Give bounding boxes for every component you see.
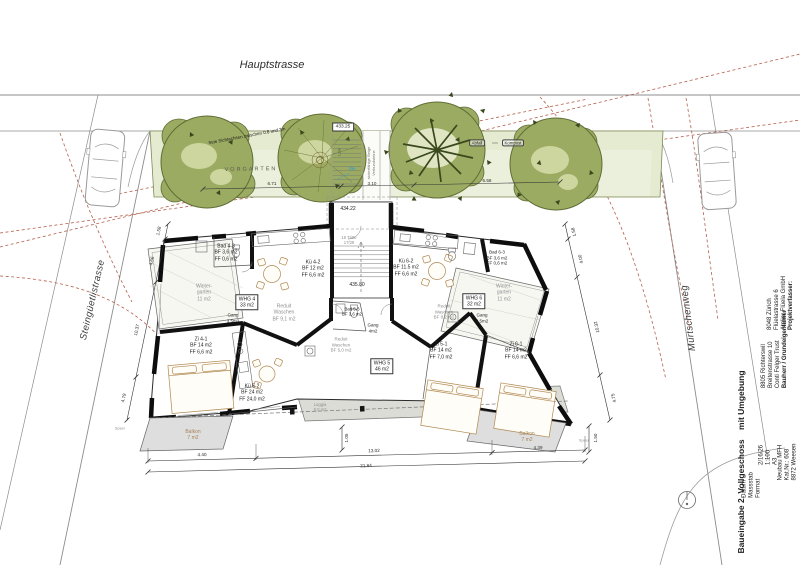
bed-zi51	[421, 380, 484, 434]
floor-plan-canvas: Hauptstrasse Steingüetlistrasse Mürtsche…	[0, 0, 800, 565]
titleblock-object: Neubau MFH Kat.Nr.: 608 8872 Weesen	[777, 444, 798, 481]
dim-balkon-right-depth: 1.50	[593, 434, 599, 443]
room-label-gang6: Gang3,5m2	[476, 312, 489, 323]
room-label-zi51: Zi 5-1BF 14 m2FF 7,0 m2	[430, 342, 453, 361]
car-right	[695, 132, 739, 211]
titleblock-author: Projektverfasser: Atelier Flüela GmbH Fl…	[767, 276, 795, 330]
room-label-reduit4: ReduitWaschenBF 9,1 m2	[272, 304, 295, 323]
tree-1	[161, 116, 255, 208]
abfall-label: Abfall	[469, 139, 485, 146]
tree-4	[510, 118, 602, 210]
outdoor-stair-width: 1,2m	[338, 148, 343, 156]
room-label-loggia: Loggia8,0 m2	[314, 402, 327, 413]
speer-label-right: Speer	[579, 439, 589, 444]
room-label-bad63: Bad 6-3BF 3,6 m2FF 0,6 m2	[487, 250, 508, 267]
room-label-whg5: WHG 546 m2	[370, 358, 393, 374]
room-label-gang4: Gang3,5m2	[227, 312, 240, 323]
dim-loggia-depth: 1.05	[344, 434, 350, 443]
dim-bottom-right: 4.39	[533, 445, 542, 451]
titleblock-meta-labels: Datum Massstab Format	[741, 472, 762, 498]
level-street: 433.25	[332, 123, 354, 132]
room-label-bad43: Bad 4-3BF 3,6 m2FF 0,6 m2	[214, 244, 237, 263]
plan-drawing	[0, 0, 800, 565]
street-label-hauptstrasse: Hauptstrasse	[240, 59, 305, 73]
dim-top-1: 6.71	[268, 181, 277, 187]
room-label-reduit5: ReduitWaschenBF 5,0 m2	[331, 337, 352, 354]
paving-note: sickerfähige BeigeVerbundsteine	[366, 147, 376, 180]
room-label-zi41: Zi 4-1BF 14 m2FF 6,6 m2	[190, 337, 213, 356]
bed-zi61	[494, 383, 557, 437]
room-label-whg4: WHG 433 m2	[235, 294, 258, 310]
dim-bottom-total: 21.84	[360, 463, 372, 469]
room-label-wintergarten-right: Winter-garten11 m2	[496, 284, 512, 303]
dim-bottom-mid: 13.02	[368, 448, 380, 454]
dim-top-3: 6.58	[483, 178, 492, 184]
room-label-ku62: Kü 6-2BF 11.5 m2FF 6,6 m2	[393, 259, 418, 278]
room-label-ku52: Kü 5-2BF 24 m2FF 24,0 m2	[239, 384, 265, 403]
dim-top-2: 3.10	[368, 181, 377, 187]
room-label-gang5: Gang4m2	[367, 322, 378, 333]
car-left	[82, 128, 127, 207]
level-floor: 435.80	[349, 282, 364, 288]
room-label-zi61: Zi 6-1BF 14 m2FF 6,6 m2	[505, 342, 528, 361]
bed-zi41	[168, 360, 234, 413]
slope-label: 1%	[349, 166, 356, 172]
level-entrance: 434.22	[340, 206, 355, 212]
room-label-ku42: Kü 4-2BF 12 m2FF 6,6 m2	[302, 260, 325, 279]
speer-label-left: Speer	[115, 427, 125, 432]
room-label-balkon-right: Balkon7 m2	[519, 431, 534, 444]
north-symbol	[679, 492, 696, 509]
dim-bottom-left: 4.40	[197, 452, 206, 458]
room-label-bad53: Bad 5-3BF 3,6 m2	[342, 307, 362, 318]
vorgarten-label: VORGARTEN	[225, 166, 278, 174]
kompost-label: Kompost	[502, 139, 524, 146]
room-label-whg6: WHG 632 m2	[462, 293, 485, 309]
room-label-balkon-left: Balkon7 m2	[185, 429, 200, 442]
titleblock-project-title: Baueingabe 2. Vollgeschoss mit Umgebung	[736, 370, 746, 553]
stair-note: 16 Tritte17/29	[341, 235, 356, 246]
room-label-wintergarten-left: Winter-garten11 m2	[196, 284, 212, 303]
room-label-reduit6: ReduitWaschenBF 8,2 m2	[434, 304, 455, 321]
